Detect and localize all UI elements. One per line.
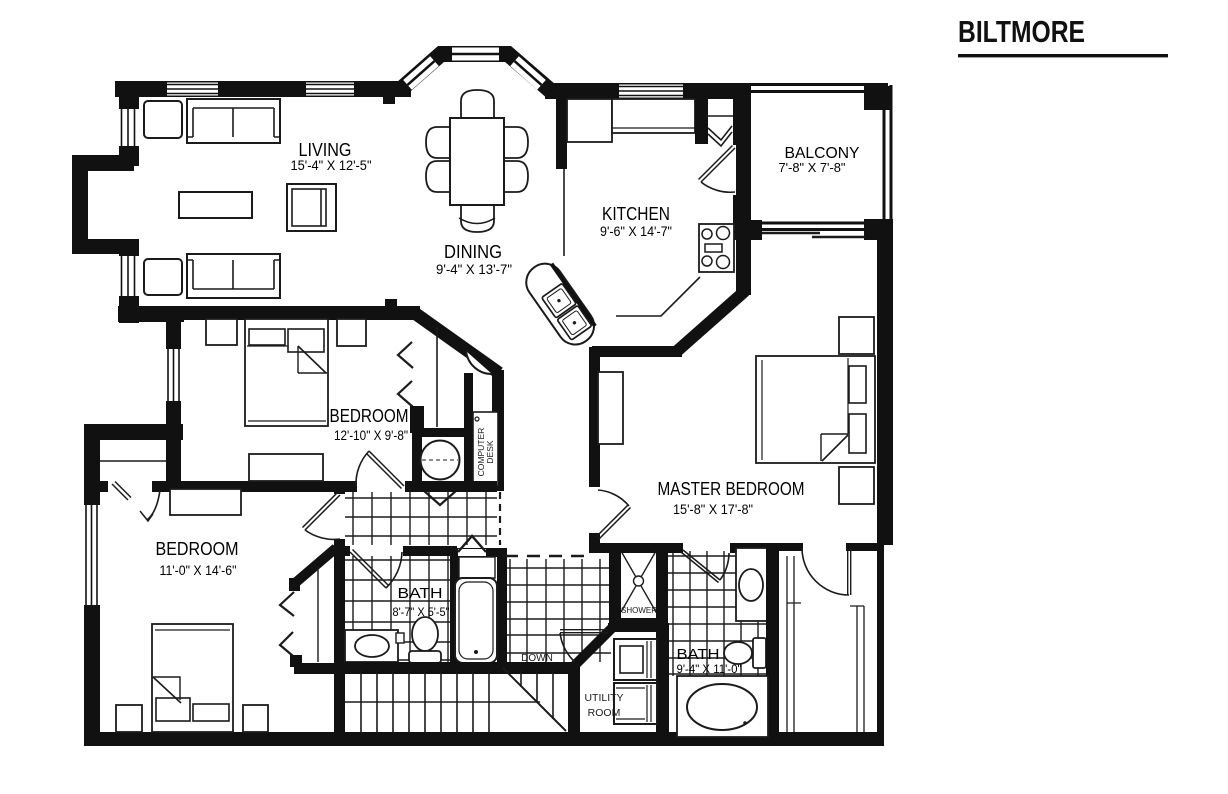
svg-text:15'-4" X 12'-5": 15'-4" X 12'-5" bbox=[291, 158, 372, 173]
svg-text:BEDROOM: BEDROOM bbox=[156, 539, 239, 559]
svg-text:KITCHEN: KITCHEN bbox=[602, 204, 670, 224]
svg-text:DESK: DESK bbox=[485, 440, 495, 463]
svg-text:SHOWER: SHOWER bbox=[621, 606, 657, 615]
svg-text:11'-0" X 14'-6": 11'-0" X 14'-6" bbox=[160, 563, 237, 578]
svg-text:BATH: BATH bbox=[398, 585, 443, 602]
svg-text:12'-10" X 9'-8": 12'-10" X 9'-8" bbox=[334, 428, 408, 443]
svg-text:7'-8" X 7'-8": 7'-8" X 7'-8" bbox=[779, 161, 846, 175]
svg-text:DINING: DINING bbox=[444, 242, 502, 262]
svg-text:DOWN: DOWN bbox=[521, 653, 553, 664]
svg-text:MASTER BEDROOM: MASTER BEDROOM bbox=[658, 479, 805, 499]
svg-text:9'-6" X 14'-7": 9'-6" X 14'-7" bbox=[600, 224, 672, 239]
svg-text:8'-7" X 5'-5": 8'-7" X 5'-5" bbox=[393, 607, 450, 619]
svg-text:9'-4" X 13'-7": 9'-4" X 13'-7" bbox=[436, 262, 512, 277]
svg-text:UTILITY: UTILITY bbox=[584, 692, 623, 704]
svg-text:ROOM: ROOM bbox=[588, 707, 621, 719]
svg-text:BATH: BATH bbox=[677, 646, 720, 663]
svg-text:LIVING: LIVING bbox=[299, 140, 352, 160]
svg-text:BALCONY: BALCONY bbox=[785, 145, 860, 162]
svg-text:BILTMORE: BILTMORE bbox=[958, 14, 1085, 49]
svg-text:9'-4" X 11'-0": 9'-4" X 11'-0" bbox=[677, 664, 742, 676]
svg-text:15'-8" X 17'-8": 15'-8" X 17'-8" bbox=[673, 502, 753, 517]
svg-text:BEDROOM: BEDROOM bbox=[330, 406, 409, 426]
